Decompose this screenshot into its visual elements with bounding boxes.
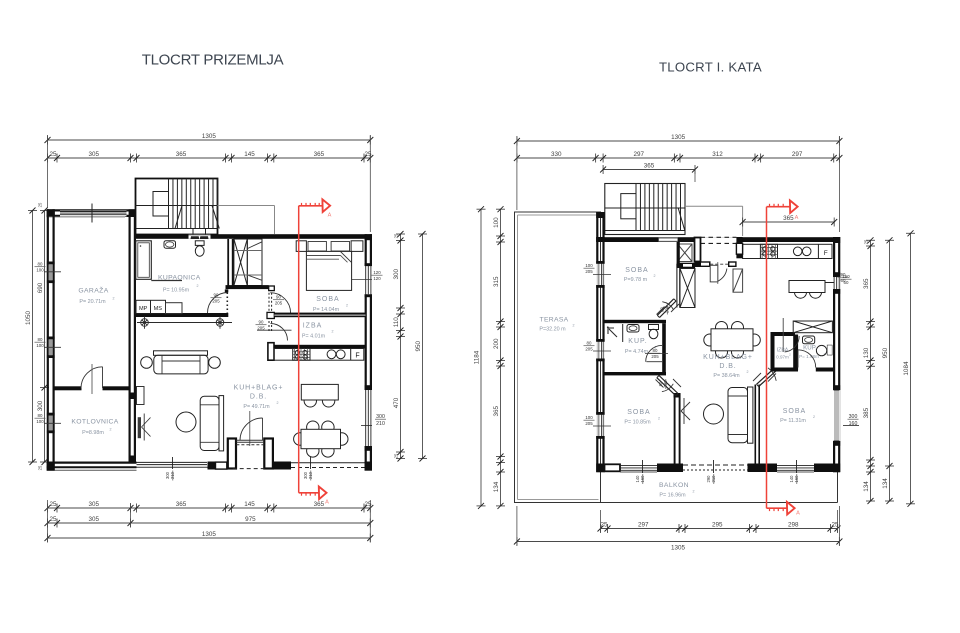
svg-text:200: 200 bbox=[493, 338, 500, 349]
svg-text:D.B.: D.B. bbox=[250, 394, 267, 401]
svg-text:1050: 1050 bbox=[25, 311, 32, 326]
svg-text:P= 4.74m: P= 4.74m bbox=[625, 349, 649, 355]
svg-text:205: 205 bbox=[585, 347, 593, 352]
svg-text:2: 2 bbox=[813, 415, 815, 419]
svg-text:365: 365 bbox=[863, 278, 870, 289]
svg-text:295: 295 bbox=[712, 521, 723, 528]
svg-text:130: 130 bbox=[863, 347, 870, 358]
svg-text:90: 90 bbox=[214, 293, 219, 298]
svg-text:2: 2 bbox=[110, 428, 112, 432]
svg-text:SOBA: SOBA bbox=[625, 267, 648, 274]
svg-text:80: 80 bbox=[658, 381, 663, 386]
svg-text:205: 205 bbox=[257, 326, 265, 331]
svg-text:2: 2 bbox=[747, 370, 749, 374]
svg-text:25: 25 bbox=[38, 202, 43, 207]
svg-text:TLOCRT PRIZEMLJA: TLOCRT PRIZEMLJA bbox=[142, 52, 284, 69]
svg-text:25: 25 bbox=[364, 501, 372, 508]
svg-text:210: 210 bbox=[376, 421, 385, 427]
svg-text:25: 25 bbox=[49, 501, 57, 508]
svg-text:P= 10.95m: P= 10.95m bbox=[163, 288, 190, 294]
svg-text:GARAŽA: GARAŽA bbox=[78, 286, 108, 295]
svg-text:205: 205 bbox=[665, 305, 670, 313]
svg-text:25: 25 bbox=[49, 151, 57, 158]
svg-text:305: 305 bbox=[88, 501, 99, 508]
svg-text:P=32.20 m: P=32.20 m bbox=[539, 327, 566, 333]
svg-text:100: 100 bbox=[585, 415, 593, 420]
svg-text:2: 2 bbox=[573, 324, 575, 328]
svg-text:F: F bbox=[824, 250, 828, 257]
svg-text:690: 690 bbox=[37, 282, 44, 293]
svg-text:F: F bbox=[355, 352, 359, 359]
svg-text:975: 975 bbox=[245, 516, 256, 523]
svg-text:TLOCRT I. KATA: TLOCRT I. KATA bbox=[659, 60, 762, 75]
svg-text:60: 60 bbox=[841, 278, 846, 283]
svg-text:25: 25 bbox=[364, 151, 372, 158]
svg-text:290: 290 bbox=[706, 475, 711, 483]
svg-text:1184: 1184 bbox=[474, 350, 481, 364]
svg-text:80: 80 bbox=[38, 337, 43, 342]
svg-text:305: 305 bbox=[88, 151, 99, 158]
svg-text:P= 16.96m: P= 16.96m bbox=[659, 493, 686, 499]
svg-text:300: 300 bbox=[37, 400, 44, 411]
svg-text:205: 205 bbox=[212, 299, 220, 304]
svg-text:P= 49.71m: P= 49.71m bbox=[243, 404, 270, 410]
svg-text:298: 298 bbox=[788, 521, 799, 528]
svg-text:205: 205 bbox=[585, 269, 593, 274]
svg-text:2: 2 bbox=[658, 417, 660, 421]
svg-text:SOBA: SOBA bbox=[627, 409, 650, 416]
svg-text:134: 134 bbox=[863, 481, 870, 492]
svg-text:2: 2 bbox=[346, 304, 348, 308]
svg-text:312: 312 bbox=[712, 151, 723, 158]
svg-text:365: 365 bbox=[314, 501, 325, 508]
svg-text:134: 134 bbox=[493, 481, 500, 492]
svg-text:90: 90 bbox=[259, 320, 264, 325]
svg-text:297: 297 bbox=[633, 151, 644, 158]
svg-text:P= 11.31m: P= 11.31m bbox=[780, 418, 806, 424]
svg-text:MP: MP bbox=[139, 306, 148, 312]
svg-text:145: 145 bbox=[244, 151, 255, 158]
svg-text:2: 2 bbox=[277, 401, 279, 405]
svg-text:210: 210 bbox=[711, 475, 716, 483]
svg-text:KUH+BLAG+: KUH+BLAG+ bbox=[234, 385, 284, 392]
svg-text:A: A bbox=[795, 215, 799, 221]
svg-text:BALKON: BALKON bbox=[659, 482, 689, 489]
svg-text:KUP.: KUP. bbox=[628, 338, 647, 345]
svg-text:100: 100 bbox=[36, 419, 44, 424]
svg-text:205: 205 bbox=[275, 301, 283, 306]
svg-text:90: 90 bbox=[276, 295, 281, 300]
svg-text:140: 140 bbox=[789, 475, 794, 483]
svg-text:80: 80 bbox=[38, 413, 43, 418]
svg-text:1305: 1305 bbox=[671, 134, 686, 141]
svg-text:2: 2 bbox=[693, 490, 695, 494]
svg-text:365: 365 bbox=[644, 162, 655, 169]
svg-text:210: 210 bbox=[170, 471, 175, 479]
svg-text:120: 120 bbox=[373, 276, 381, 281]
svg-text:330: 330 bbox=[551, 151, 562, 158]
svg-text:210: 210 bbox=[308, 471, 313, 479]
svg-text:365: 365 bbox=[176, 151, 187, 158]
svg-text:950: 950 bbox=[415, 341, 422, 352]
svg-text:100: 100 bbox=[493, 217, 500, 228]
svg-text:A: A bbox=[328, 213, 332, 219]
svg-text:P= 10.85m: P= 10.85m bbox=[624, 420, 651, 426]
svg-text:110: 110 bbox=[393, 317, 400, 328]
svg-text:2: 2 bbox=[654, 274, 656, 278]
svg-text:297: 297 bbox=[792, 151, 803, 158]
svg-text:KOTLOVNICA: KOTLOVNICA bbox=[71, 419, 118, 426]
svg-text:A: A bbox=[796, 511, 800, 517]
svg-text:P= 38.64m: P= 38.64m bbox=[713, 373, 740, 379]
svg-text:1084: 1084 bbox=[903, 361, 910, 376]
svg-text:300: 300 bbox=[393, 269, 400, 280]
svg-text:300: 300 bbox=[303, 471, 308, 479]
svg-text:365: 365 bbox=[783, 215, 794, 222]
svg-text:2: 2 bbox=[197, 284, 199, 288]
svg-text:IZBA: IZBA bbox=[303, 323, 323, 330]
svg-text:300: 300 bbox=[165, 471, 170, 479]
svg-text:205: 205 bbox=[585, 421, 593, 426]
svg-text:25: 25 bbox=[394, 233, 399, 238]
svg-text:120: 120 bbox=[373, 270, 381, 275]
svg-text:205: 205 bbox=[663, 380, 668, 388]
svg-text:365: 365 bbox=[314, 151, 325, 158]
svg-text:297: 297 bbox=[638, 521, 649, 528]
svg-text:205: 205 bbox=[651, 354, 659, 359]
svg-text:D.B.: D.B. bbox=[719, 363, 736, 370]
svg-text:1305: 1305 bbox=[671, 545, 686, 552]
svg-text:KUH+BLAG+: KUH+BLAG+ bbox=[703, 354, 753, 361]
svg-text:SOBA: SOBA bbox=[316, 296, 339, 303]
svg-text:SOBA: SOBA bbox=[783, 408, 806, 415]
svg-text:A: A bbox=[325, 500, 329, 506]
svg-text:KUPAONICA: KUPAONICA bbox=[158, 274, 201, 281]
svg-text:134: 134 bbox=[882, 478, 889, 489]
svg-text:80: 80 bbox=[587, 341, 592, 346]
svg-text:1305: 1305 bbox=[202, 531, 217, 538]
svg-text:KUP.: KUP. bbox=[803, 345, 817, 352]
svg-text:90: 90 bbox=[841, 272, 846, 277]
svg-text:100: 100 bbox=[36, 268, 44, 273]
svg-text:950: 950 bbox=[882, 347, 889, 358]
svg-text:25: 25 bbox=[49, 516, 57, 523]
svg-text:0.97m: 0.97m bbox=[776, 355, 789, 360]
svg-text:1305: 1305 bbox=[202, 133, 217, 140]
svg-text:305: 305 bbox=[88, 516, 99, 523]
svg-text:2: 2 bbox=[113, 297, 115, 301]
svg-text:145: 145 bbox=[244, 501, 255, 508]
svg-text:P= 20.71m: P= 20.71m bbox=[79, 299, 106, 305]
svg-text:100: 100 bbox=[585, 263, 593, 268]
svg-text:25: 25 bbox=[864, 239, 869, 244]
svg-text:470: 470 bbox=[393, 397, 400, 408]
svg-text:IZBA: IZBA bbox=[777, 348, 789, 354]
svg-text:365: 365 bbox=[176, 501, 187, 508]
svg-text:100: 100 bbox=[36, 343, 44, 348]
svg-text:TERASA: TERASA bbox=[540, 317, 569, 324]
svg-text:140: 140 bbox=[635, 475, 640, 483]
svg-text:315: 315 bbox=[493, 276, 500, 287]
svg-text:P= 14.04m: P= 14.04m bbox=[313, 307, 340, 313]
svg-text:80: 80 bbox=[653, 348, 658, 353]
svg-text:160: 160 bbox=[640, 475, 645, 483]
svg-text:80: 80 bbox=[659, 307, 664, 312]
svg-text:P= 1.98m: P= 1.98m bbox=[799, 354, 819, 359]
svg-text:80: 80 bbox=[38, 262, 43, 267]
svg-text:25: 25 bbox=[600, 521, 608, 528]
svg-text:P=9.78 m: P=9.78 m bbox=[624, 277, 648, 283]
svg-text:160: 160 bbox=[794, 475, 799, 483]
svg-text:MS: MS bbox=[154, 306, 163, 312]
svg-text:365: 365 bbox=[493, 406, 500, 417]
svg-text:2: 2 bbox=[332, 330, 334, 334]
svg-text:25: 25 bbox=[394, 453, 399, 458]
svg-text:P= 4.01m: P= 4.01m bbox=[302, 333, 326, 339]
svg-text:25: 25 bbox=[38, 465, 43, 470]
svg-text:385: 385 bbox=[863, 407, 870, 418]
svg-text:P=8.98m: P=8.98m bbox=[82, 430, 104, 436]
